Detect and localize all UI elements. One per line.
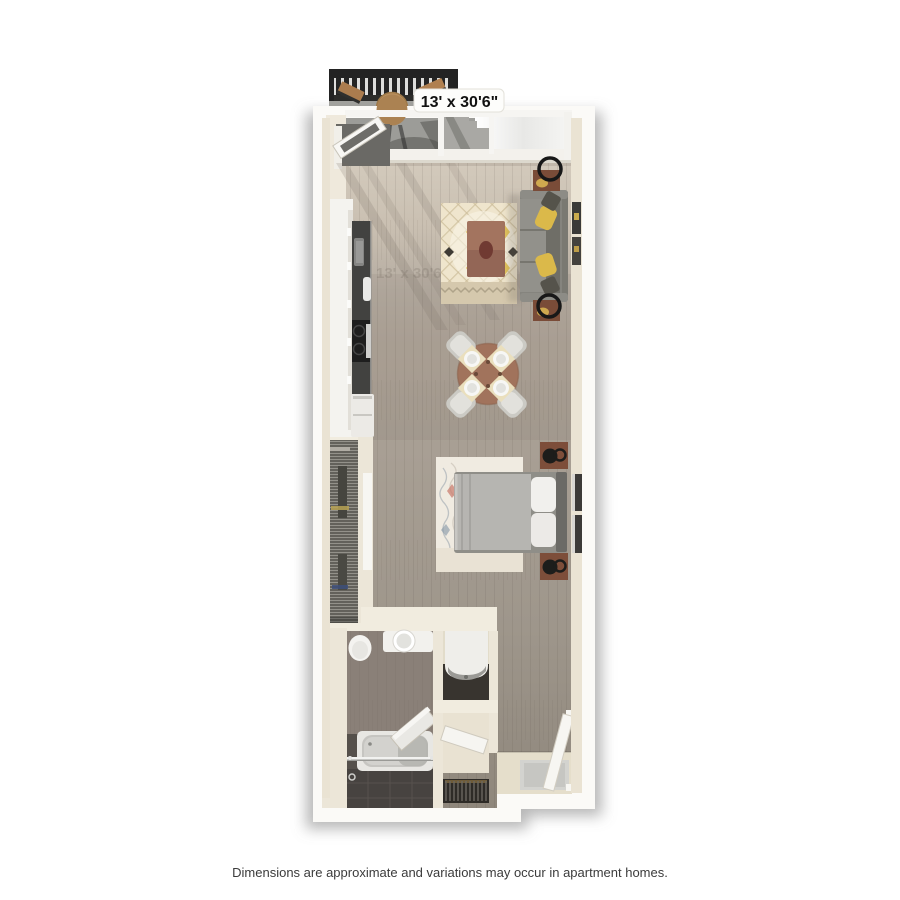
svg-text:13' x 30'6": 13' x 30'6" <box>376 265 449 282</box>
svg-text:13' x 30'6": 13' x 30'6" <box>421 94 498 111</box>
svg-text:Dimensions are approximate and: Dimensions are approximate and variation… <box>232 865 668 880</box>
